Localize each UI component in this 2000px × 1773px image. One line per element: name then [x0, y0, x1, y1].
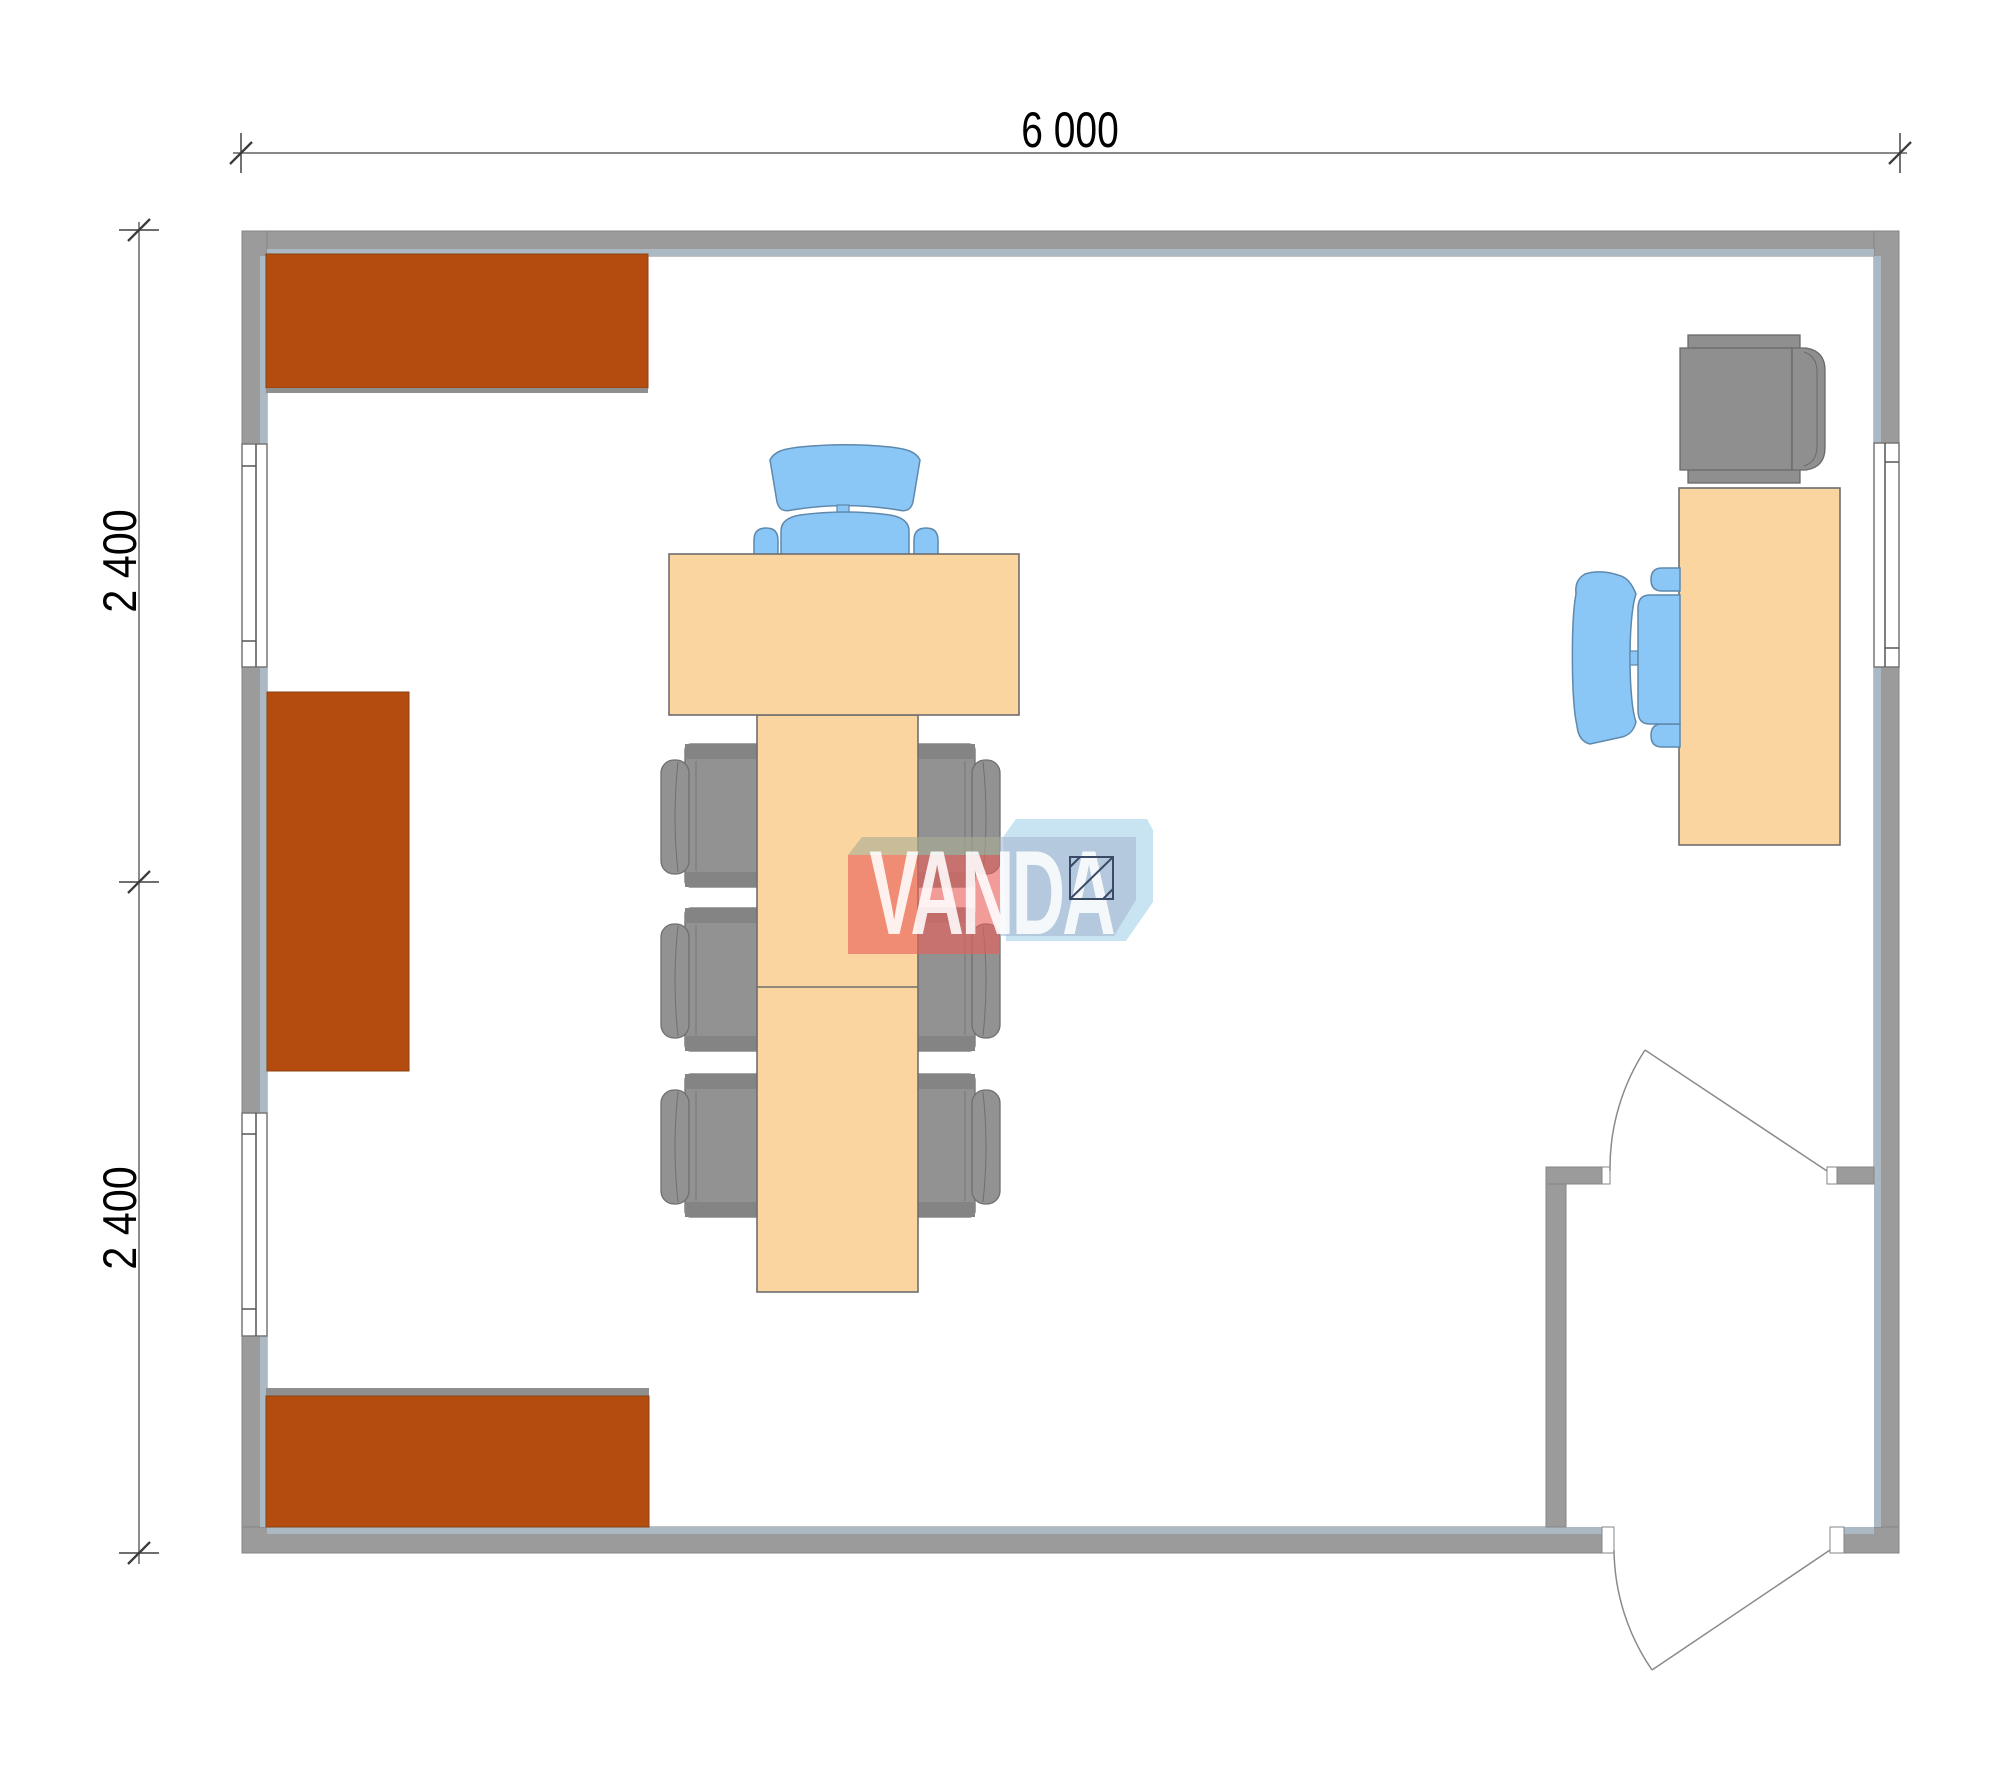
svg-text:6 000: 6 000 — [1021, 101, 1119, 158]
svg-text:2 400: 2 400 — [95, 1166, 147, 1269]
svg-text:VANDA: VANDA — [869, 827, 1114, 960]
svg-text:2 400: 2 400 — [95, 509, 147, 612]
